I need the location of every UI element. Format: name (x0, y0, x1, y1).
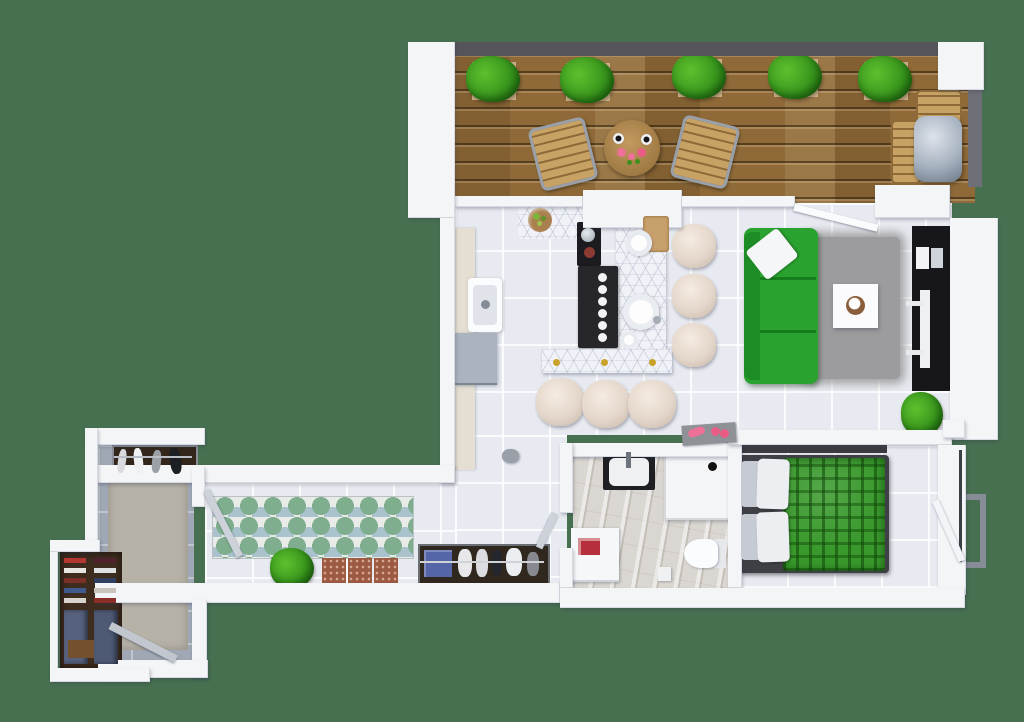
floor-plan-scene (0, 0, 1024, 722)
planter-plant (466, 56, 520, 102)
bed-pillow (756, 511, 790, 562)
table-flowers (617, 148, 626, 157)
doormat (374, 558, 398, 584)
wall-right-living (950, 218, 998, 440)
media-box (916, 247, 929, 269)
cooktop-knobs (598, 273, 607, 282)
sofa-cushion-gap (760, 330, 816, 333)
bed-blanket (783, 458, 885, 571)
wall-entry-left (85, 428, 98, 548)
french-window-rail-right (980, 494, 986, 568)
wall-bathroom-left-upper (560, 443, 573, 513)
doormat (322, 558, 346, 584)
bar-stool (672, 224, 716, 268)
wall-hallway-bottom (95, 583, 560, 603)
shoes-white (458, 549, 472, 577)
media-box (931, 248, 943, 268)
shower (664, 450, 732, 520)
table-bowl (846, 296, 865, 315)
bed-pillow (756, 458, 790, 509)
coffee-cup (613, 133, 624, 144)
planter-plant (768, 53, 822, 99)
stored-box (68, 640, 94, 658)
waste-bin (658, 567, 671, 581)
breakfast-bar (542, 349, 672, 373)
planter-plant (672, 53, 726, 99)
wall-terrace-left-column (408, 42, 455, 218)
bench-towel (424, 550, 452, 577)
kettle (581, 228, 595, 242)
toilet-bowl (684, 539, 718, 568)
wall-entry-top (85, 428, 205, 445)
terrace-top-railing (455, 42, 975, 56)
planter-plant (560, 57, 614, 103)
fruit (533, 213, 540, 220)
wall-bathroom-right (728, 443, 742, 588)
kitchen-faucet (481, 300, 490, 309)
terrace-wall-right-segment (682, 196, 795, 207)
bar-stool (672, 323, 716, 367)
shoes-dark (492, 550, 502, 576)
shoes-gray (527, 552, 539, 576)
folded-clothes (94, 558, 116, 563)
island-bowl (626, 230, 652, 256)
coffee-grinder (584, 247, 595, 258)
vanity-faucet (626, 452, 631, 468)
wall-entry-right-upper (192, 467, 205, 507)
shoes-white (476, 549, 488, 577)
planter-plant (858, 56, 912, 102)
robot-vacuum (502, 449, 519, 463)
washing-machine (571, 528, 619, 582)
folded-clothes (64, 558, 86, 563)
wall-bathroom-left-lower (560, 548, 573, 588)
bar-stool (628, 380, 676, 428)
wall-left-kitchen (440, 218, 455, 483)
hall-plant (270, 548, 314, 588)
wall-alcove-left (50, 552, 58, 674)
terrace-wall-left-segment (455, 196, 583, 207)
bar-stool (536, 378, 584, 426)
bbq-grill (914, 116, 962, 182)
island-sink-faucet (653, 316, 661, 324)
bench-rail (420, 561, 544, 563)
wall-alcove-top (50, 540, 100, 552)
hanging-clothes (94, 610, 118, 664)
pink-sneakers (711, 427, 720, 436)
wall-alcove-bottom (50, 668, 150, 682)
wall-hallway-top (95, 465, 455, 483)
island-small-bowl (620, 331, 638, 349)
bar-knobs (553, 359, 560, 366)
wall-bottom-main (560, 588, 965, 608)
wall-segment (875, 185, 950, 218)
fruit-bowl (528, 208, 552, 232)
bar-stool (672, 274, 716, 318)
wall-bedroom-top (728, 430, 952, 445)
coffee-cup (641, 134, 652, 145)
terrace-round-table (604, 120, 660, 176)
detergent-box (578, 538, 600, 555)
wall-jut-right (943, 420, 965, 438)
tv-foot (906, 350, 924, 355)
runner-rug (213, 497, 413, 558)
bar-stool (582, 380, 630, 428)
rack-rail (114, 456, 192, 458)
tv-foot (906, 301, 924, 306)
doormat (348, 558, 372, 584)
shower-drain (708, 462, 717, 471)
bedroom-window-glass (959, 450, 962, 562)
dishwasher (455, 333, 497, 385)
wall-corner-top-right (938, 42, 984, 90)
island-round-sink (623, 294, 659, 330)
wall-bathroom-top (565, 443, 740, 457)
